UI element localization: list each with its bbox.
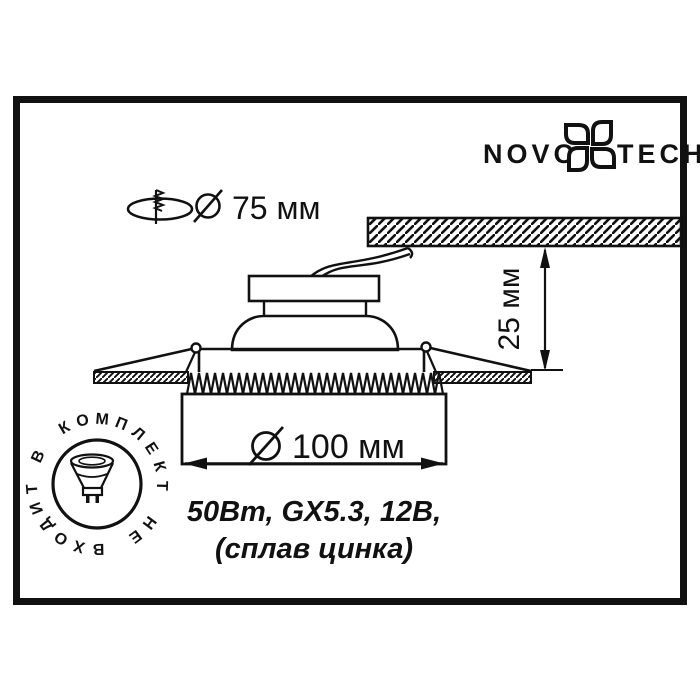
- stamp-letter: И: [27, 499, 47, 516]
- fixture-dome: [232, 316, 398, 350]
- lamp-not-included-stamp: В КОМПЛЕКТ НЕ ВХОДИТ: [24, 411, 170, 557]
- stamp-letter: К: [56, 418, 73, 438]
- lamp-holder-box: [249, 276, 379, 301]
- fixture-housing: [199, 349, 424, 372]
- stamp-letter: В: [93, 540, 105, 557]
- brand-name-right: TECH: [617, 139, 700, 169]
- specs-line1: 50Вт, GX5.3, 12В,: [187, 496, 441, 528]
- stamp-letter: Д: [36, 515, 57, 535]
- clip-pivot-right: [422, 343, 431, 352]
- stamp-letter: М: [95, 411, 110, 429]
- spring-clip-left: [94, 344, 201, 384]
- stamp-letter: Л: [128, 424, 147, 444]
- specs-line2: (сплав цинка): [215, 533, 413, 565]
- brand-name-left: NOVO: [483, 139, 579, 169]
- stamp-letter: К: [150, 459, 169, 473]
- clip-pivot-left: [192, 344, 201, 353]
- visible-diameter-label: 100 мм: [292, 428, 405, 466]
- depth-dimension: 25 мм: [493, 247, 563, 371]
- diameter-icon-75: [194, 190, 222, 222]
- drill-hole-icon: [128, 190, 192, 224]
- heatsink-fins: [187, 373, 443, 394]
- brand-logo: NOVO TECH: [483, 122, 700, 170]
- stamp-letter: О: [75, 411, 91, 430]
- stamp-letter: Е: [141, 440, 161, 459]
- stamp-letter: П: [113, 414, 130, 434]
- stamp-letter: О: [52, 527, 72, 548]
- ceiling-section: [368, 218, 681, 246]
- stamp-letter: Т: [24, 483, 42, 494]
- technical-drawing-page: NOVO TECH 75 мм: [0, 0, 700, 700]
- stamp-letter: В: [28, 448, 48, 466]
- stamp-letter: Х: [71, 536, 86, 555]
- stamp-letter: Е: [126, 526, 145, 546]
- drawing-svg: NOVO TECH 75 мм: [0, 0, 700, 700]
- cutout-diameter-label: 75 мм: [232, 190, 320, 226]
- cutout-note: 75 мм: [128, 190, 320, 226]
- depth-label: 25 мм: [493, 268, 526, 351]
- stamp-letter: Т: [153, 481, 170, 491]
- stamp-letter: Н: [139, 513, 160, 532]
- fixture-neck: [264, 301, 366, 316]
- mounting-wire: [310, 248, 412, 277]
